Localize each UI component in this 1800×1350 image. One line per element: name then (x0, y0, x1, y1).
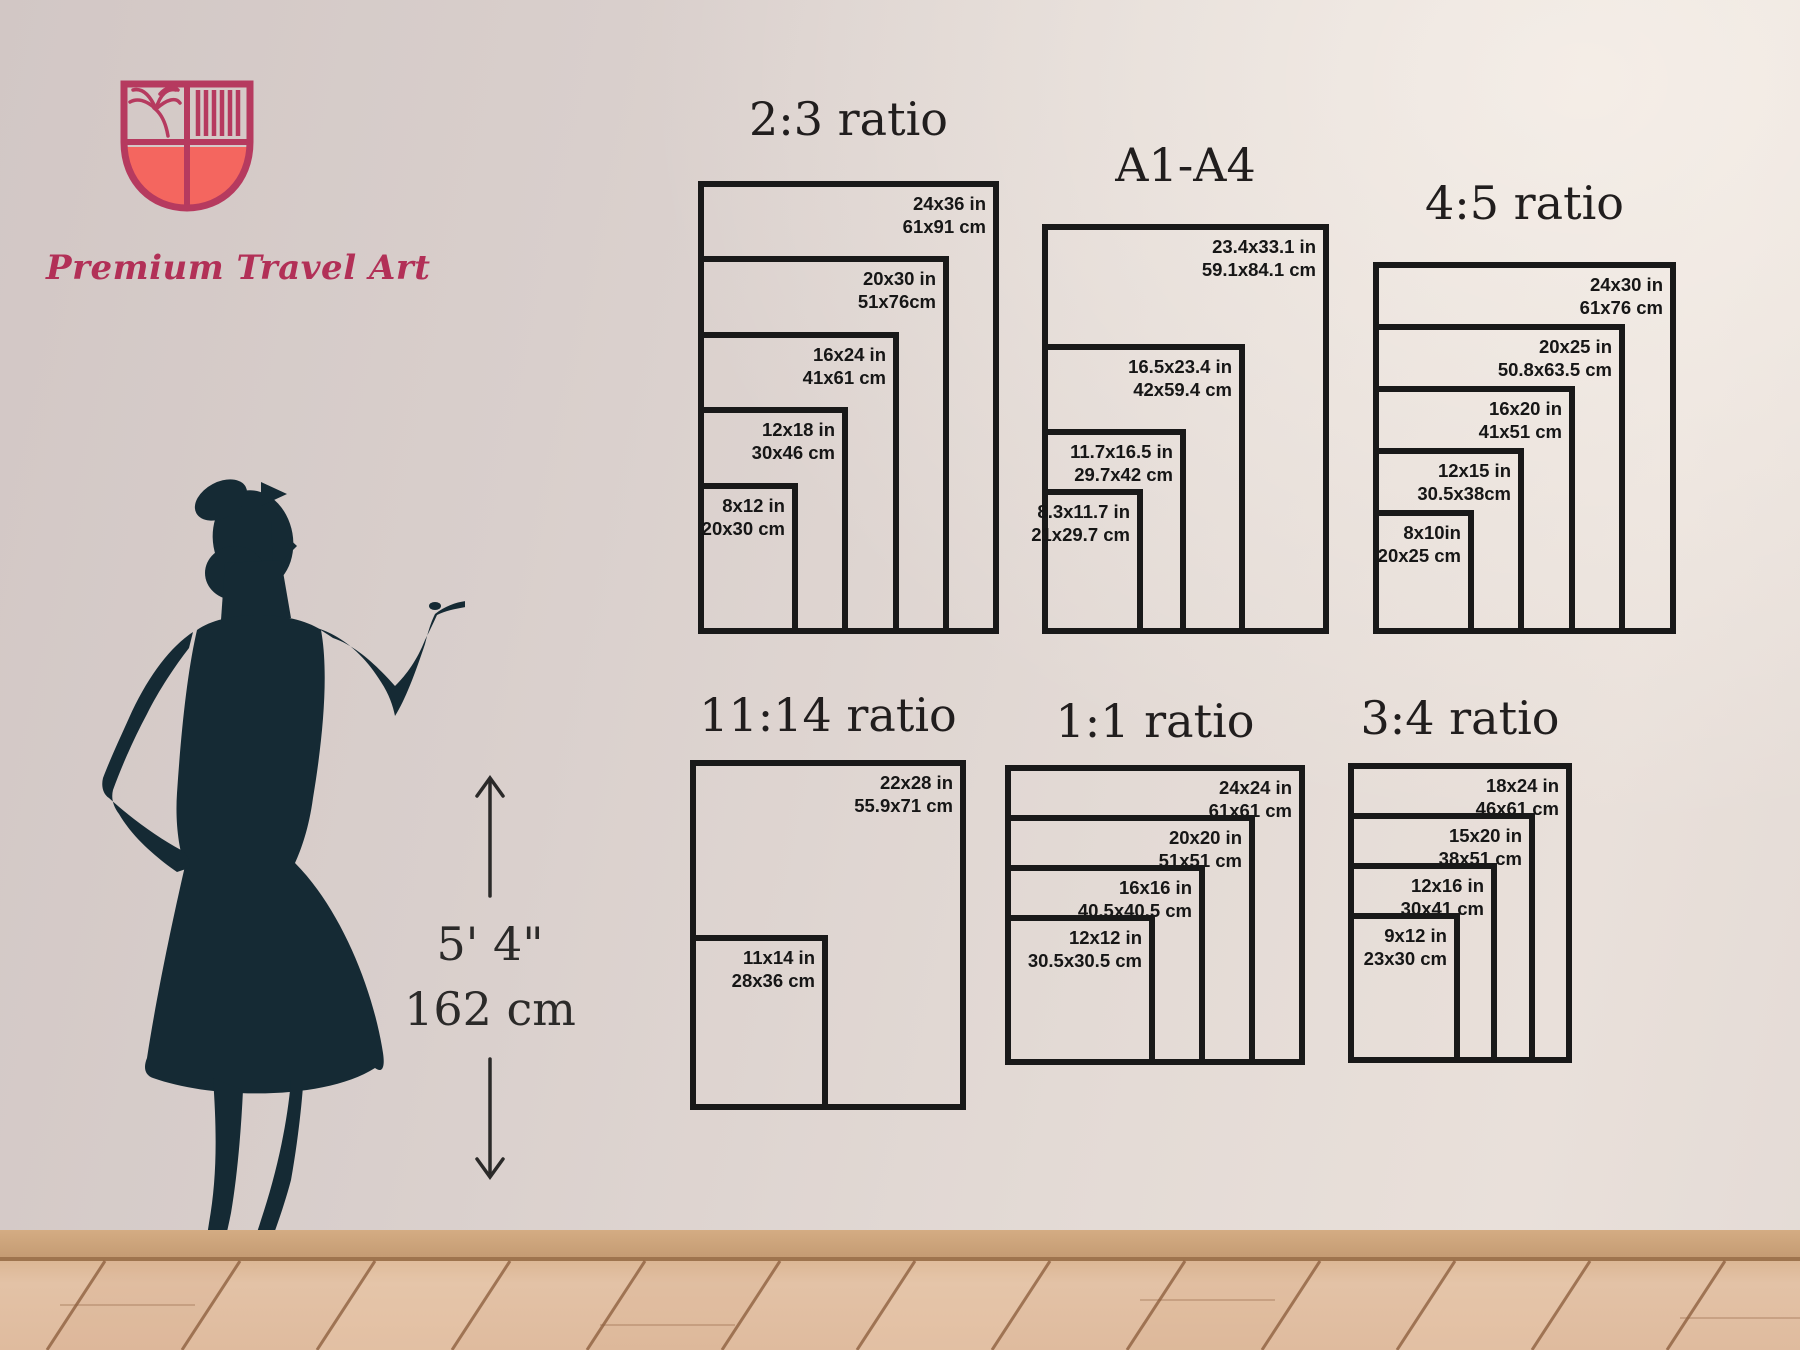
size-label-11x14: 11x14 in28x36 cm (732, 946, 815, 992)
size-frame-15x20: 15x20 in38x51 cm 12x16 in30x41 cm 9x12 i… (1348, 813, 1535, 1063)
chart-title: A1-A4 (1008, 138, 1363, 192)
shield-logo-icon (116, 78, 258, 214)
size-label-22x28: 22x28 in55.9x71 cm (854, 771, 953, 817)
height-feet: 5' 4" (360, 912, 620, 977)
size-frame-16x20: 16x20 in41x51 cm 12x15 in30.5x38cm 8x10i… (1373, 386, 1575, 634)
size-label-16x24: 16x24 in41x61 cm (803, 343, 886, 389)
size-label-12x12: 12x12 in30.5x30.5 cm (1028, 926, 1142, 972)
size-frame-9x12: 9x12 in23x30 cm (1348, 913, 1460, 1063)
size-frame-12x18: 12x18 in30x46 cm 8x12 in20x30 cm (698, 407, 848, 634)
size-frame-20x20: 20x20 in51x51 cm 16x16 in40.5x40.5 cm 12… (1005, 815, 1255, 1065)
size-frame-a2: 16.5x23.4 in42x59.4 cm 11.7x16.5 in29.7x… (1042, 344, 1245, 634)
size-label-a2: 16.5x23.4 in42x59.4 cm (1128, 355, 1232, 401)
chart-title: 4:5 ratio (1339, 176, 1710, 230)
size-label-24x36: 24x36 in61x91 cm (903, 192, 986, 238)
height-cm: 162 cm (360, 977, 620, 1042)
wood-floor (0, 1230, 1800, 1350)
up-arrow-icon (470, 770, 510, 900)
size-frame-8x12: 8x12 in20x30 cm (698, 483, 798, 634)
size-label-16x20: 16x20 in41x51 cm (1479, 397, 1562, 443)
size-label-20x25: 20x25 in50.8x63.5 cm (1498, 335, 1612, 381)
size-guide-poster: { "brand": { "name": "Premium Travel Art… (0, 0, 1800, 1350)
size-frame-a4: 8.3x11.7 in21x29.7 cm (1042, 489, 1143, 634)
size-label-9x12: 9x12 in23x30 cm (1364, 924, 1447, 970)
chart-11-14-ratio: 11:14 ratio 22x28 in55.9x71 cm 11x14 in2… (690, 760, 966, 1110)
size-frame-11x14: 11x14 in28x36 cm (690, 935, 828, 1110)
chart-4-5-ratio: 4:5 ratio 24x30 in61x76 cm 20x25 in50.8x… (1373, 262, 1676, 634)
chart-title: 2:3 ratio (664, 92, 1033, 146)
woman-silhouette (85, 478, 465, 1338)
brand-name: Premium Travel Art (46, 248, 346, 288)
size-label-12x18: 12x18 in30x46 cm (752, 418, 835, 464)
size-label-a3: 11.7x16.5 in29.7x42 cm (1070, 440, 1173, 486)
chart-3-4-ratio: 3:4 ratio 18x24 in46x61 cm 15x20 in38x51… (1348, 763, 1572, 1063)
size-label-24x30: 24x30 in61x76 cm (1580, 273, 1663, 319)
chart-1-1-ratio: 1:1 ratio 24x24 in61x61 cm 20x20 in51x51… (1005, 765, 1305, 1065)
size-frame-16x16: 16x16 in40.5x40.5 cm 12x12 in30.5x30.5 c… (1005, 865, 1205, 1065)
size-frame-12x16: 12x16 in30x41 cm 9x12 in23x30 cm (1348, 863, 1497, 1063)
size-frame-a3: 11.7x16.5 in29.7x42 cm 8.3x11.7 in21x29.… (1042, 429, 1186, 634)
size-label-8x10: 8x10in20x25 cm (1378, 521, 1461, 567)
size-frame-20x30: 20x30 in51x76cm 16x24 in41x61 cm 12x18 i… (698, 256, 949, 634)
chart-a1-a4: A1-A4 23.4x33.1 in59.1x84.1 cm 16.5x23.4… (1042, 224, 1329, 634)
chart-title: 1:1 ratio (971, 694, 1339, 748)
height-marker: 5' 4" 162 cm (360, 912, 620, 1043)
down-arrow-icon (470, 1055, 510, 1185)
baseboard (0, 1230, 1800, 1260)
size-label-a1: 23.4x33.1 in59.1x84.1 cm (1202, 235, 1316, 281)
chart-2-3-ratio: 2:3 ratio 24x36 in61x91 cm 20x30 in51x76… (698, 181, 999, 634)
size-frame-16x24: 16x24 in41x61 cm 12x18 in30x46 cm 8x12 i… (698, 332, 899, 634)
size-frame-12x12: 12x12 in30.5x30.5 cm (1005, 915, 1155, 1065)
size-frame-20x25: 20x25 in50.8x63.5 cm 16x20 in41x51 cm 12… (1373, 324, 1625, 634)
size-frame-12x15: 12x15 in30.5x38cm 8x10in20x25 cm (1373, 448, 1524, 634)
size-label-20x30: 20x30 in51x76cm (858, 267, 936, 313)
size-frame-8x10: 8x10in20x25 cm (1373, 510, 1474, 634)
size-label-12x15: 12x15 in30.5x38cm (1417, 459, 1511, 505)
size-label-a4: 8.3x11.7 in21x29.7 cm (1031, 500, 1130, 546)
chart-title: 11:14 ratio (656, 688, 1000, 742)
size-label-8x12: 8x12 in20x30 cm (702, 494, 785, 540)
chart-title: 3:4 ratio (1314, 691, 1606, 745)
